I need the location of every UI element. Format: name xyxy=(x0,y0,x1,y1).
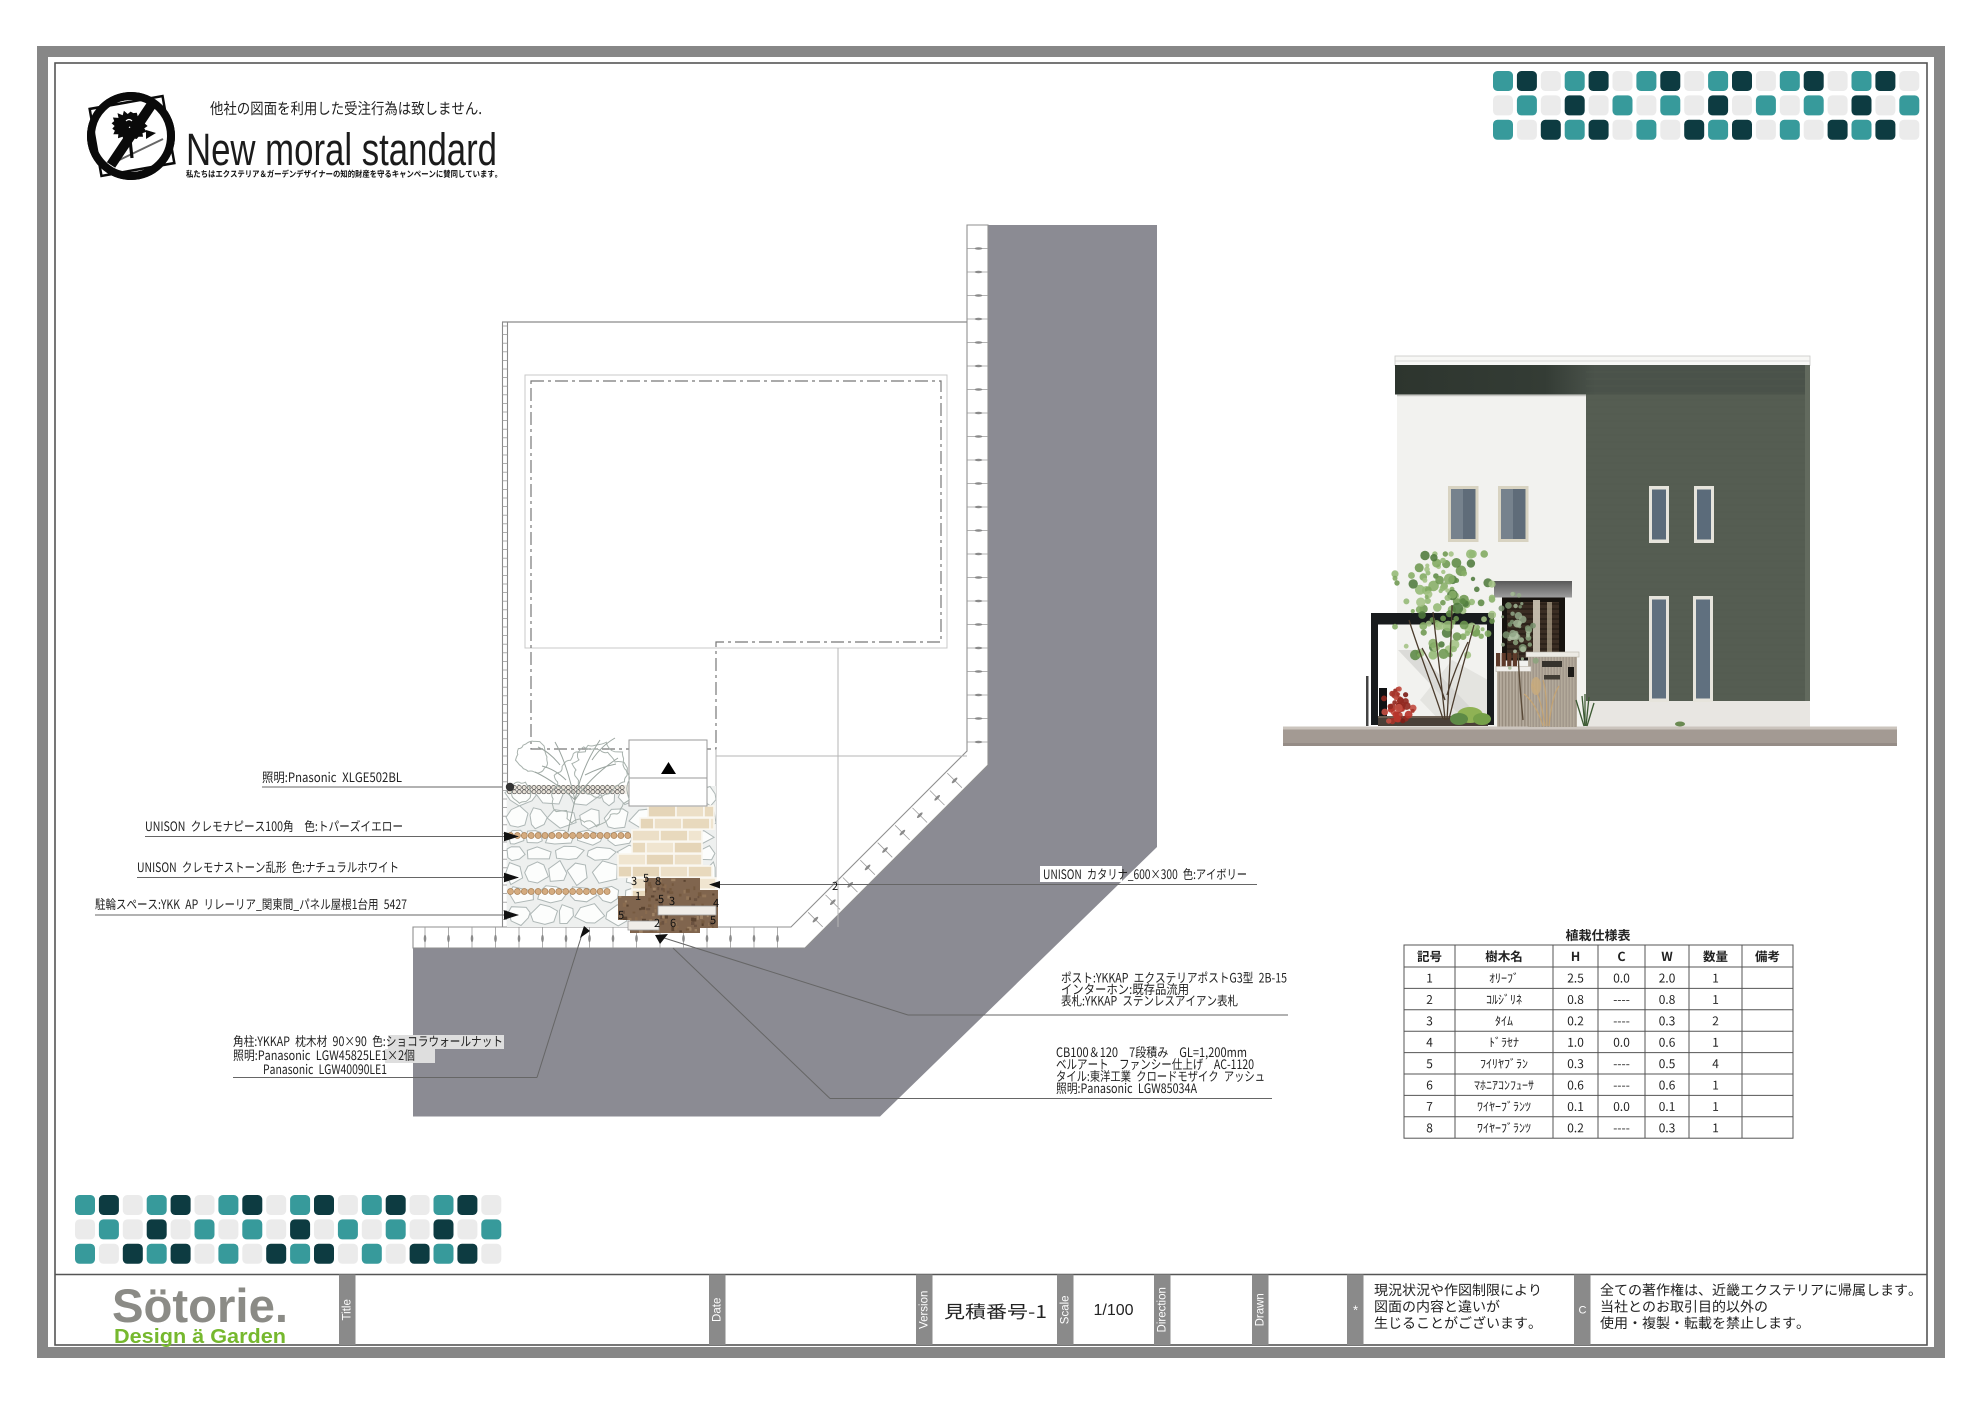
svg-text:Design ä Garden: Design ä Garden xyxy=(114,1326,286,1348)
svg-text:*: * xyxy=(1353,1303,1358,1318)
svg-text:C: C xyxy=(1579,1305,1587,1317)
svg-text:Title: Title xyxy=(342,1299,354,1320)
svg-text:Drawn: Drawn xyxy=(1255,1293,1267,1326)
svg-text:1/100: 1/100 xyxy=(1093,1302,1133,1319)
svg-text:Scale: Scale xyxy=(1060,1295,1072,1324)
svg-text:Direction: Direction xyxy=(1157,1287,1169,1332)
svg-text:Version: Version xyxy=(919,1291,931,1329)
svg-text:Sötorie.: Sötorie. xyxy=(112,1279,288,1332)
svg-text:New moral standard: New moral standard xyxy=(186,124,497,175)
svg-text:Date: Date xyxy=(712,1298,724,1322)
